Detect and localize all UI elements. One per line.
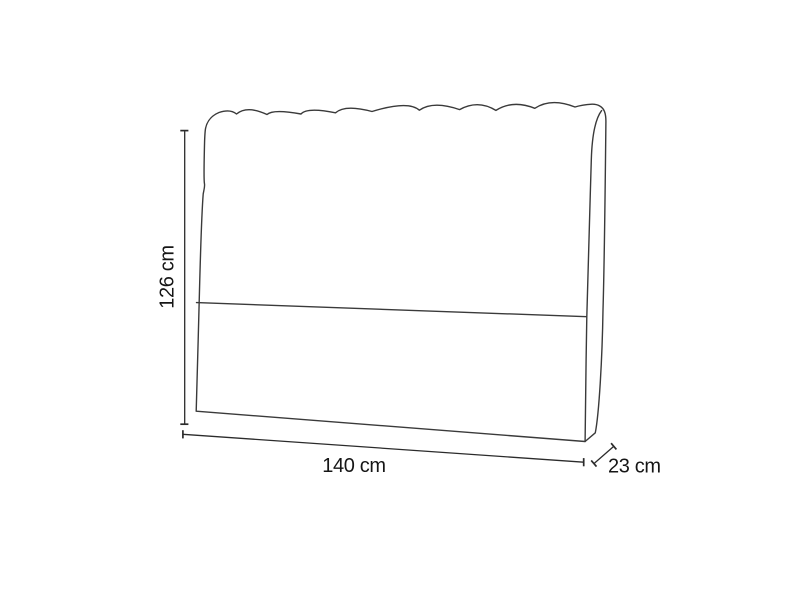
svg-text:126 cm: 126 cm: [157, 245, 179, 309]
svg-text:140 cm: 140 cm: [322, 455, 386, 477]
svg-text:23 cm: 23 cm: [608, 455, 661, 477]
